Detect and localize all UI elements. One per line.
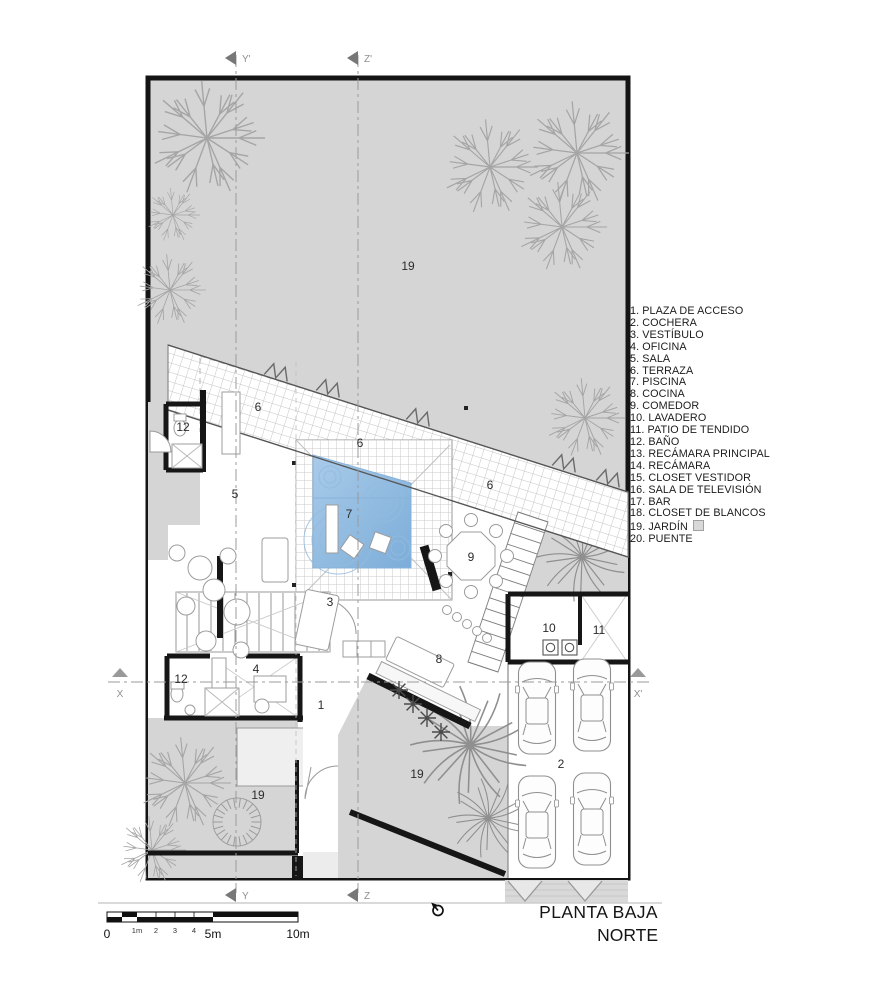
marker-label: Z: [364, 891, 370, 902]
floor-plan-page: Y' Z' Y Z X X' 19 6 6 6 12 5 7 9 3 10 11…: [0, 0, 884, 1000]
section-arrow-icon: [347, 51, 358, 65]
section-arrow-icon: [347, 888, 358, 902]
scale-label: 1m: [132, 926, 142, 935]
jardin-swatch: [693, 520, 704, 531]
north-label: NORTE: [597, 925, 658, 946]
scale-label: 3: [173, 926, 177, 935]
section-arrow-icon: [225, 51, 236, 65]
room-label-terraza: 6: [487, 478, 494, 492]
scale-label: 0: [104, 927, 111, 941]
room-label-piscina: 7: [346, 507, 353, 521]
marker-label: Y: [242, 891, 249, 902]
room-label-jardin3: 19: [410, 767, 424, 781]
marker-label: X: [117, 689, 124, 700]
room-label-comedor: 9: [468, 550, 475, 564]
scale-label: 2: [154, 926, 158, 935]
room-label-terraza: 6: [357, 436, 364, 450]
room-label-sala: 5: [232, 487, 239, 501]
title-block: PLANTA BAJA NORTE: [430, 902, 658, 946]
marker-label: Z': [364, 54, 372, 65]
room-label-plaza: 1: [318, 698, 325, 712]
legend: 1.PLAZA DE ACCESO 2.COCHERA 3.VESTÍBULO …: [630, 306, 870, 546]
scale-label: 4: [192, 926, 196, 935]
legend-item: 20.PUENTE: [630, 534, 870, 546]
scale-label: 5m: [205, 927, 222, 941]
scale-label: 10m: [286, 927, 309, 941]
room-label-jardin: 19: [401, 259, 415, 273]
marker-label: Y': [242, 54, 251, 65]
room-label-jardin2: 19: [251, 788, 265, 802]
room-label-cocina: 8: [436, 652, 443, 666]
room-label-lavadero: 10: [542, 621, 556, 635]
room-label-cochera: 2: [558, 757, 565, 771]
section-arrow-icon: [630, 668, 646, 677]
marker-label: X': [634, 689, 643, 700]
section-arrow-icon: [112, 668, 128, 677]
page-title: PLANTA BAJA: [430, 902, 658, 923]
entry-walk: [303, 698, 338, 878]
room-label-patio: 11: [593, 623, 606, 637]
north-arrow-icon: [430, 902, 445, 917]
section-arrow-icon: [225, 888, 236, 902]
scale-bar: 0 1m 2 3 4 5m 10m: [104, 912, 310, 941]
room-label-bano2: 12: [174, 672, 188, 686]
room-label-terraza: 6: [255, 400, 262, 414]
room-label-bano: 12: [176, 420, 190, 434]
room-label-vestibulo: 3: [327, 595, 334, 609]
driveway: [505, 880, 628, 903]
room-label-oficina: 4: [253, 662, 260, 676]
legend-item: 18.CLOSET DE BLANCOS: [630, 508, 870, 520]
legend-item: 19.JARDÍN: [630, 520, 870, 534]
